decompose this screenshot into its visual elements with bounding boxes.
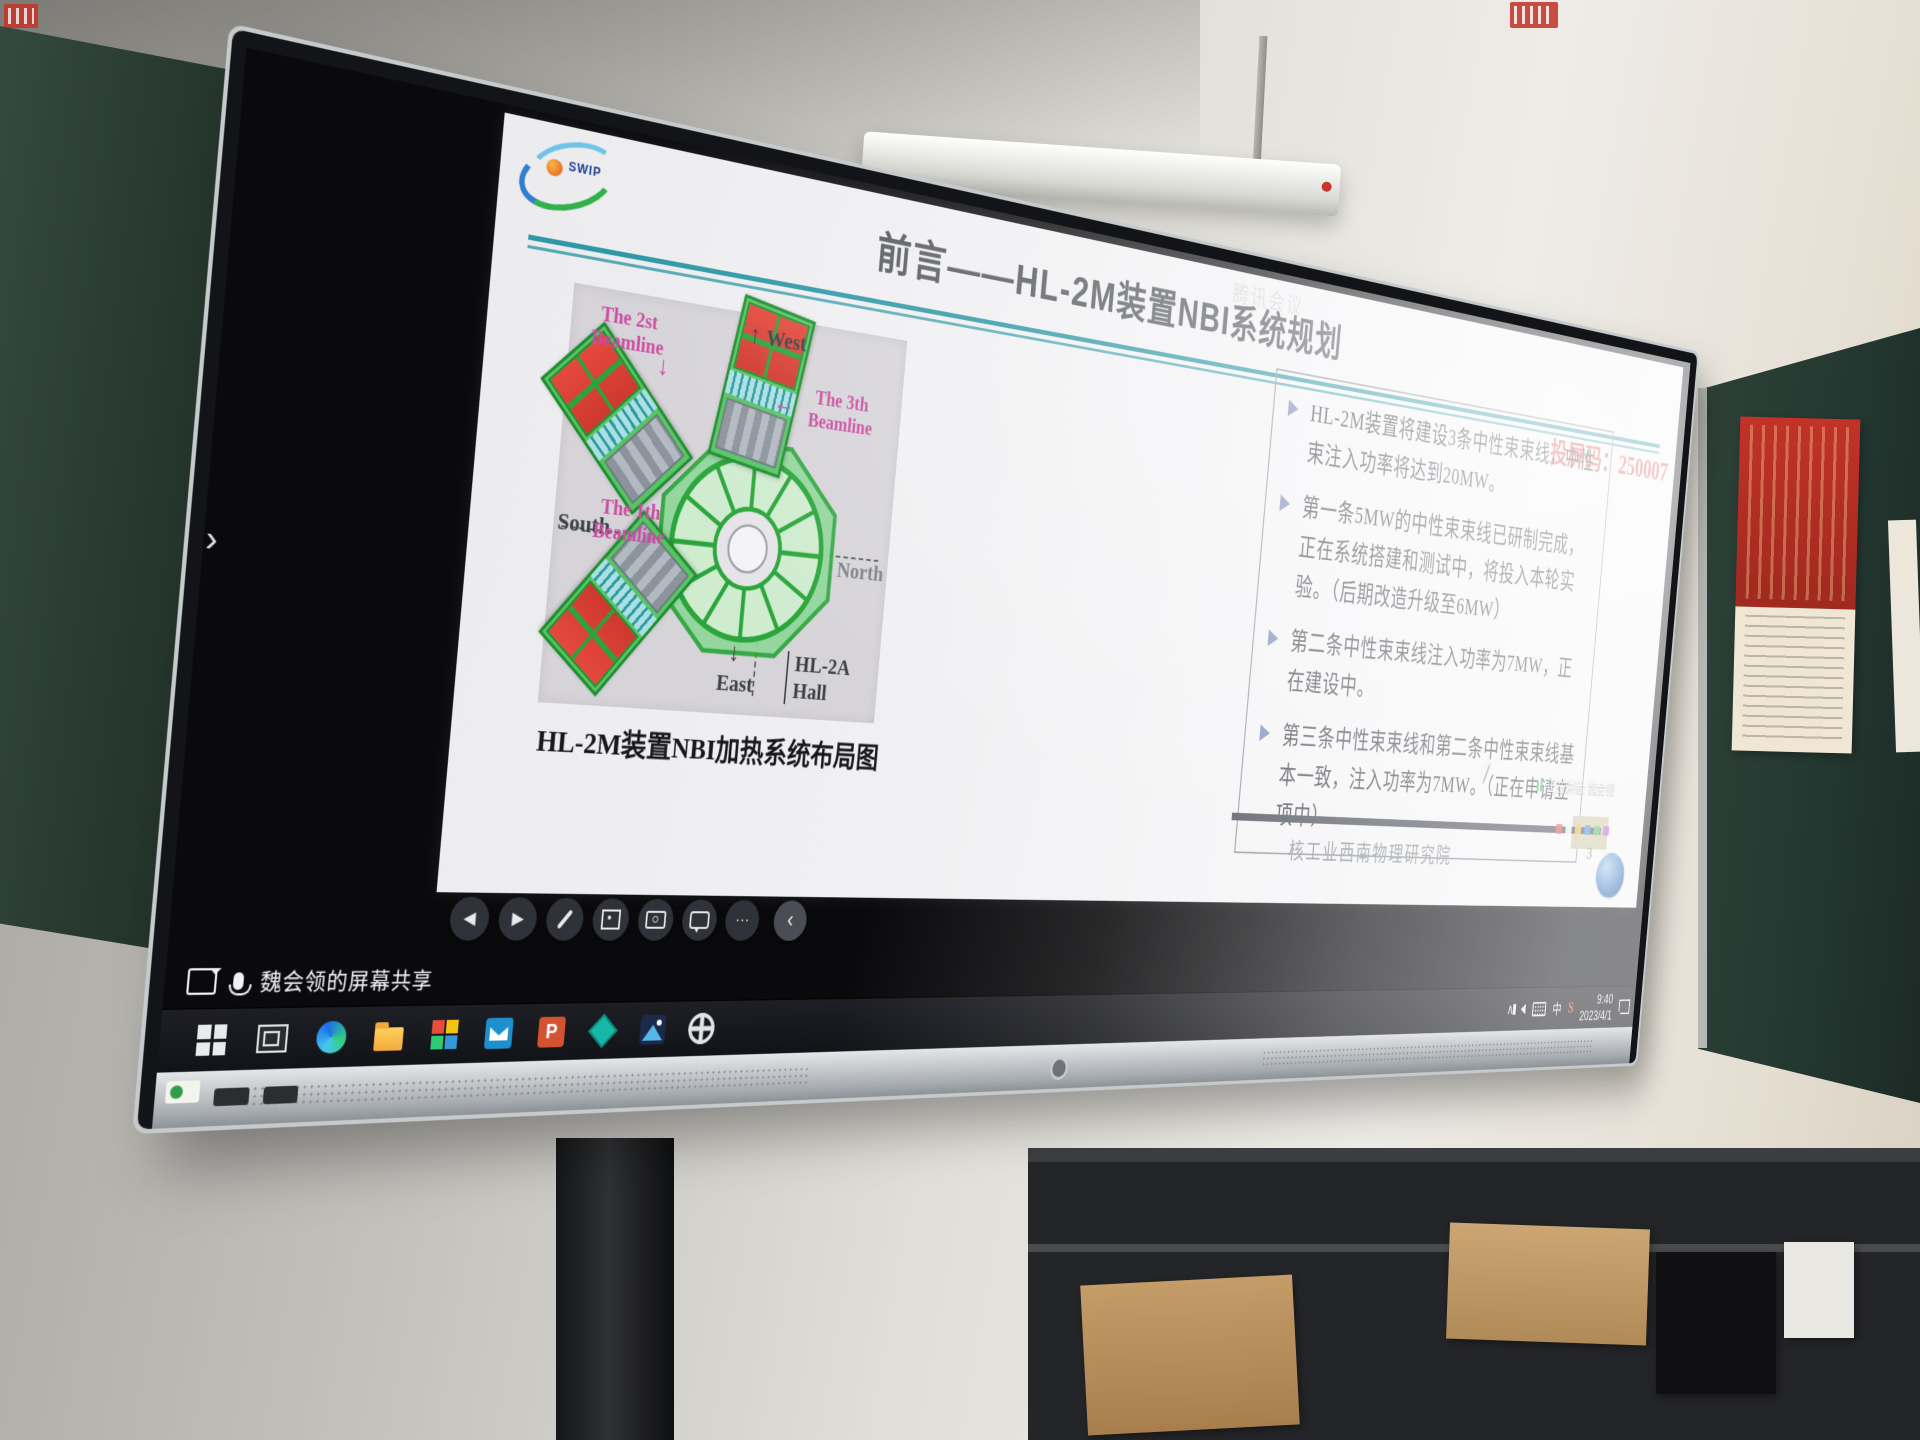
mail-button[interactable] — [482, 1015, 516, 1051]
previous-slide-button[interactable]: ◀ — [448, 897, 491, 941]
arrow-down-icon: ↓ — [728, 638, 741, 664]
mail-icon — [484, 1018, 514, 1050]
language-indicator[interactable]: 中 — [1552, 998, 1563, 1018]
camera-icon — [645, 911, 667, 929]
taskbar-apps: P — [158, 1012, 717, 1061]
file-explorer-icon — [373, 1027, 404, 1051]
edge-browser-icon — [315, 1021, 347, 1054]
pen-button[interactable] — [545, 898, 586, 941]
share-cast-icon — [186, 968, 218, 995]
screen: SWIP 腾讯会议 前言——HL-2M装置NBI系统规划 投屏码：250007 — [157, 48, 1691, 1073]
classroom-scene: SWIP 腾讯会议 前言——HL-2M装置NBI系统规划 投屏码：250007 — [0, 0, 1920, 1440]
more-button[interactable]: ··· — [724, 900, 761, 941]
ceiling-conduit — [1253, 36, 1268, 166]
swip-logo-icon: SWIP — [513, 128, 626, 216]
hall-label: HL-2A Hall — [784, 651, 856, 709]
settings-gear-icon — [687, 1013, 716, 1045]
whiteboard-app-button[interactable] — [427, 1017, 462, 1053]
easinote-button[interactable] — [637, 1013, 668, 1047]
compass-north: North — [836, 558, 884, 589]
seewo-diamond-icon — [588, 1014, 617, 1048]
easinote-icon — [639, 1015, 667, 1045]
speaker-icon[interactable] — [1520, 1004, 1526, 1015]
presenter-toolbar: ◀ ▶ ··· ‹ — [448, 897, 808, 941]
footer-organization: 核工业西南物理研究院 — [1287, 834, 1453, 870]
front-port — [263, 1086, 299, 1105]
arrow-down-icon: ↓ — [657, 352, 670, 380]
equipment-cart — [1028, 1148, 1920, 1440]
wall-poster — [1732, 416, 1861, 753]
foam-block — [1784, 1242, 1854, 1338]
brand-s-icon[interactable]: S — [1567, 999, 1574, 1016]
nbi-layout-diagram: The 2st Beamline ↓ ↑ West ← The 3th Beam… — [538, 283, 907, 724]
microphone-icon — [233, 972, 245, 990]
windows-start-icon — [195, 1024, 227, 1056]
next-slide-button[interactable]: ▶ — [497, 897, 539, 940]
task-view-button[interactable] — [253, 1020, 291, 1058]
settings-button[interactable] — [686, 1012, 717, 1046]
beamline-1-label: The 1th Beamline — [581, 492, 677, 551]
smartboard: SWIP 腾讯会议 前言——HL-2M装置NBI系统规划 投屏码：250007 — [137, 29, 1698, 1130]
page-number: 3 — [1586, 844, 1593, 864]
inspection-sticker — [165, 1080, 201, 1104]
file-explorer-button[interactable] — [371, 1018, 407, 1055]
clock-time: 9:40 — [1596, 991, 1614, 1008]
side-panel-chevron-icon[interactable]: › — [204, 519, 219, 558]
system-tray: ∧ 中 S 9:40 2023/4/1 — [1505, 986, 1631, 1031]
screenshot-button[interactable] — [591, 898, 631, 940]
red-wall-mark — [1510, 2, 1558, 28]
speaker-grille — [243, 1066, 810, 1110]
taskbar-clock[interactable]: 9:40 2023/4/1 — [1579, 991, 1614, 1025]
share-label: 魏会领的屏幕共享 — [259, 964, 434, 998]
whiteboard-grid-icon — [430, 1020, 459, 1050]
mouse-cursor — [1482, 763, 1490, 783]
windows-start-button[interactable] — [192, 1021, 231, 1060]
screen-share-indicator[interactable]: 魏会领的屏幕共享 — [186, 964, 434, 999]
speaking-indicator: 正在讲话: 魏会领 — [1535, 774, 1615, 799]
display-stand-column — [556, 1138, 674, 1440]
screenshot-icon — [601, 909, 622, 929]
front-port — [213, 1087, 250, 1106]
task-view-icon — [256, 1024, 289, 1053]
presentation-slide: SWIP 腾讯会议 前言——HL-2M装置NBI系统规划 投屏码：250007 — [437, 113, 1684, 908]
brand-logo-icon — [1049, 1057, 1068, 1081]
notification-center-icon[interactable] — [1618, 999, 1630, 1014]
seewo-app-button[interactable] — [587, 1014, 619, 1049]
meeting-icon-row — [1555, 824, 1609, 836]
bullet-item: 第二条中性束束线注入功率为7MW，正在建设中。 — [1261, 619, 1584, 724]
speaker-grille — [1261, 1038, 1593, 1068]
edge-browser-button[interactable] — [313, 1019, 350, 1056]
speaking-label: 正在讲话: 魏会领 — [1546, 775, 1615, 799]
collapse-toolbar-button[interactable]: ‹ — [772, 900, 808, 940]
comment-icon — [689, 911, 710, 929]
cardboard-box — [1080, 1275, 1300, 1436]
arrow-up-icon: ↑ — [749, 320, 762, 347]
comment-button[interactable] — [681, 899, 719, 940]
pen-icon — [557, 909, 573, 929]
compass-east: East — [715, 670, 754, 700]
keyboard-icon[interactable] — [1532, 1002, 1547, 1017]
red-wall-mark — [4, 4, 38, 28]
poster-body — [1732, 607, 1856, 754]
cardboard-box — [1446, 1223, 1650, 1346]
camera-button[interactable] — [636, 899, 675, 941]
poster-header — [1735, 416, 1860, 609]
chalkboard-right-frame — [1698, 388, 1707, 1048]
powerpoint-button[interactable]: P — [535, 1015, 568, 1050]
smartboard-bezel: SWIP 腾讯会议 前言——HL-2M装置NBI系统规划 投屏码：250007 — [137, 29, 1698, 1130]
mic-level-icon — [1536, 778, 1544, 792]
clock-date: 2023/4/1 — [1579, 1007, 1613, 1024]
powerpoint-icon: P — [537, 1017, 566, 1048]
beamline-3-label: The 3th Beamline — [791, 382, 889, 442]
black-case — [1656, 1252, 1776, 1394]
